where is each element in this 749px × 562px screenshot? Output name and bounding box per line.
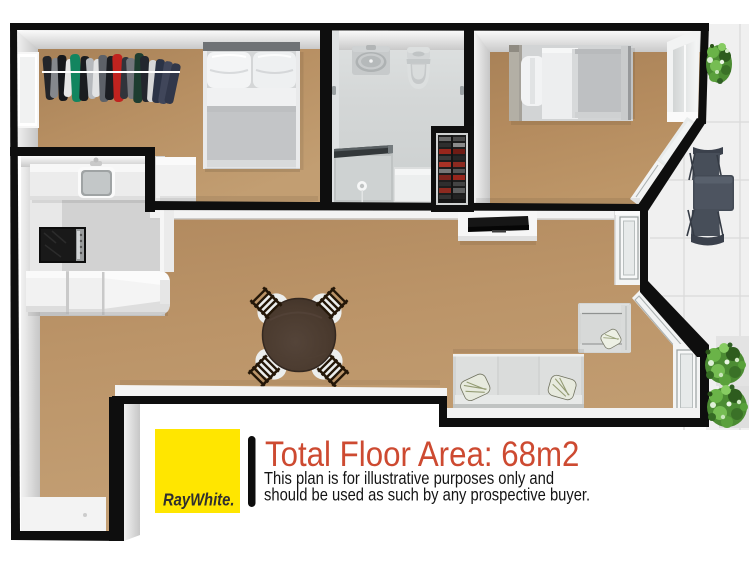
svg-text:should be used as such by any: should be used as such by any prospectiv…: [264, 485, 590, 505]
svg-text:RayWhite.: RayWhite.: [163, 490, 234, 509]
